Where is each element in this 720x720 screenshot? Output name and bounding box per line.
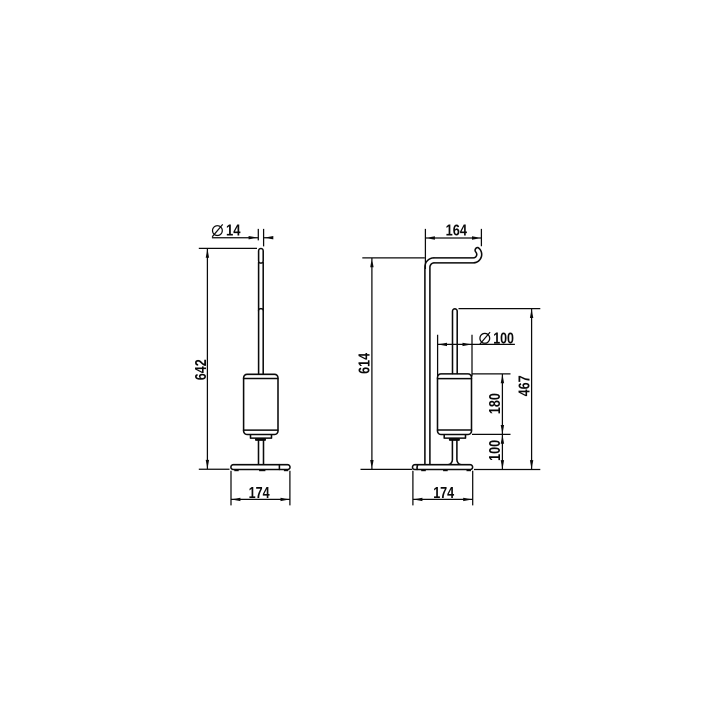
svg-text:164: 164 — [446, 223, 468, 240]
svg-text:614: 614 — [356, 353, 373, 374]
svg-text:180: 180 — [487, 393, 504, 414]
svg-text:642: 642 — [193, 359, 210, 380]
svg-text:14: 14 — [226, 223, 241, 240]
svg-text:100: 100 — [487, 440, 504, 461]
svg-text:467: 467 — [517, 375, 534, 396]
svg-text:174: 174 — [433, 485, 454, 502]
svg-text:100: 100 — [493, 330, 514, 347]
svg-text:174: 174 — [249, 485, 270, 502]
